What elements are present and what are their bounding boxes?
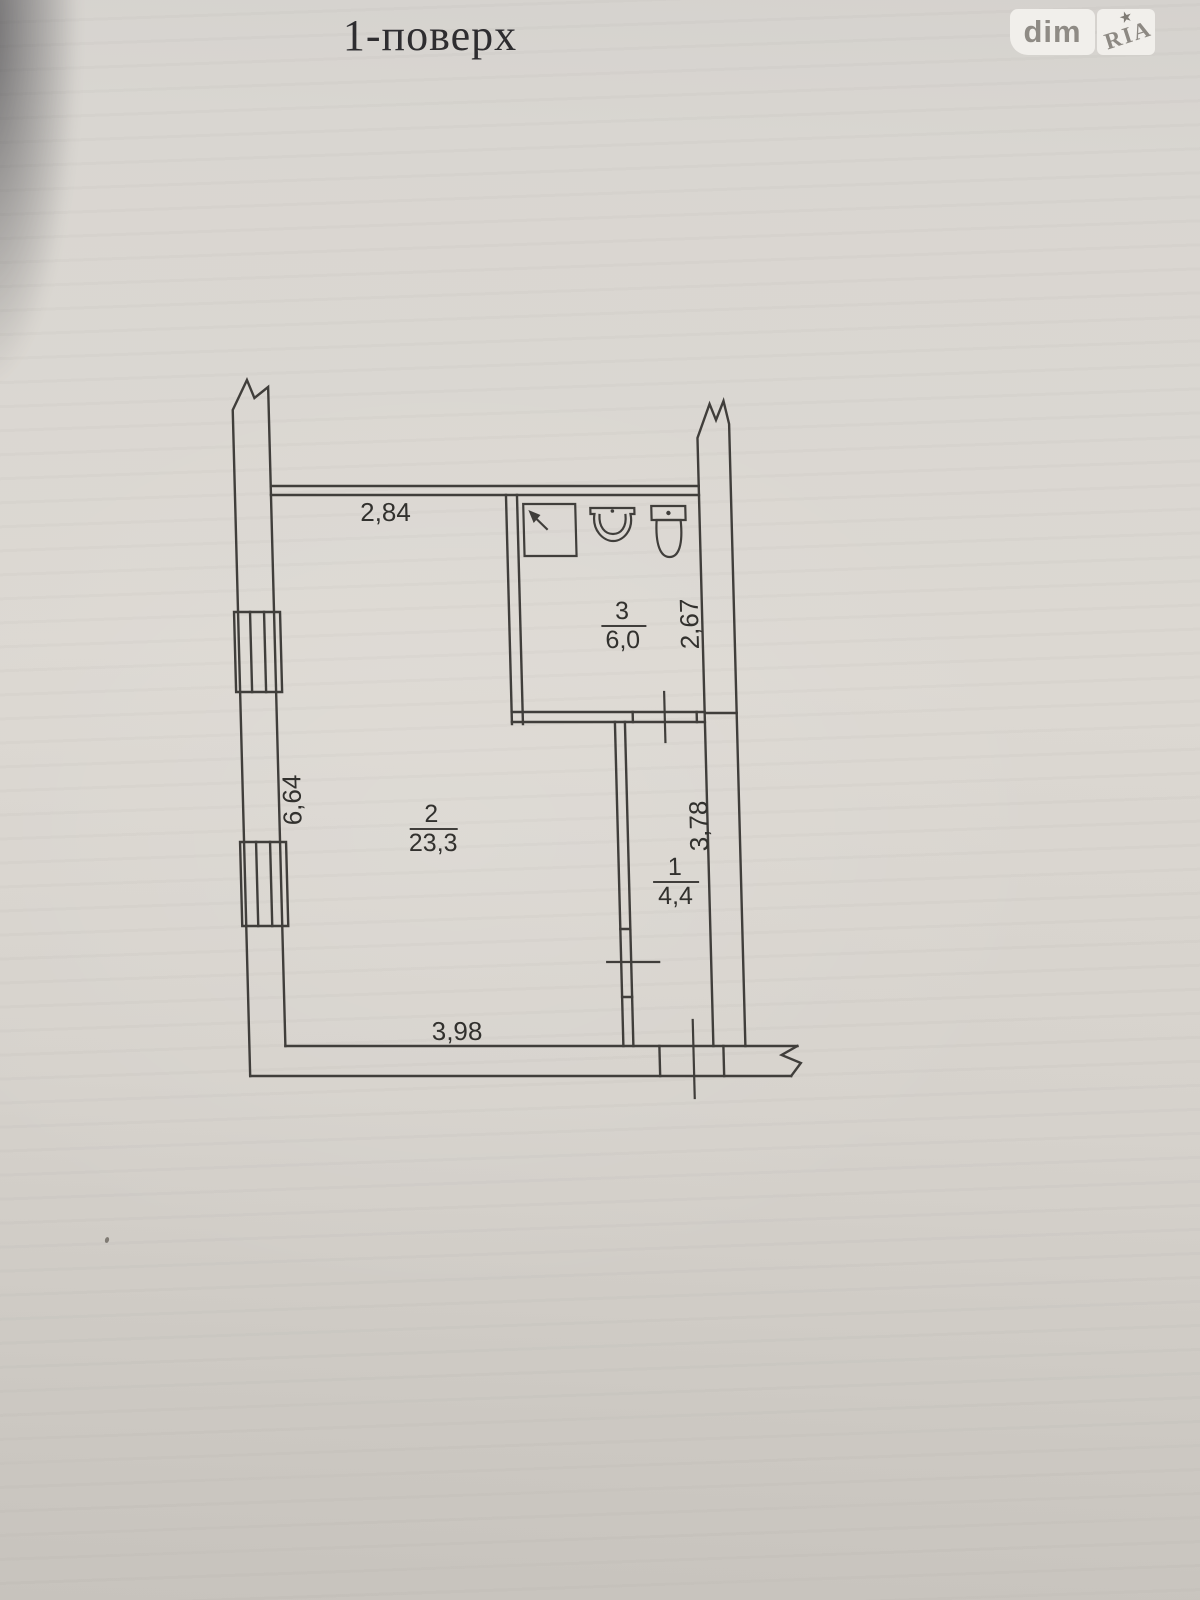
entrance-door-tick bbox=[693, 1020, 695, 1098]
top-wall bbox=[271, 486, 699, 495]
bathroom-bottom-wall bbox=[512, 712, 705, 722]
dimension-left-wall: 6,64 bbox=[276, 775, 307, 826]
toilet-icon bbox=[651, 506, 686, 557]
left-exterior-wall bbox=[232, 380, 286, 1076]
bathroom-door-tick bbox=[664, 692, 665, 742]
room-area: 4,4 bbox=[658, 882, 694, 910]
room-area: 23,3 bbox=[408, 829, 457, 857]
room-number: 3 bbox=[615, 597, 630, 625]
sink-icon bbox=[590, 508, 635, 541]
dimension-top-wall: 2,84 bbox=[360, 497, 411, 527]
dimension-corridor-right: 3,78 bbox=[683, 801, 714, 852]
right-exterior-wall bbox=[697, 401, 746, 1046]
room-area: 6,0 bbox=[605, 626, 640, 654]
shower-icon bbox=[523, 504, 576, 556]
room-number: 1 bbox=[667, 853, 682, 881]
dimension-bathroom-right: 2,67 bbox=[674, 599, 705, 650]
bathroom-left-wall bbox=[506, 495, 523, 724]
floor-plan-drawing: 2,84 2,67 6,64 3,78 3,98 3 6,0 2 23,3 1 … bbox=[0, 0, 1200, 1600]
dimension-bottom-wall: 3,98 bbox=[431, 1016, 482, 1046]
bottom-wall bbox=[249, 1046, 801, 1076]
corridor-left-wall bbox=[615, 722, 633, 1046]
room-number: 2 bbox=[424, 800, 439, 828]
